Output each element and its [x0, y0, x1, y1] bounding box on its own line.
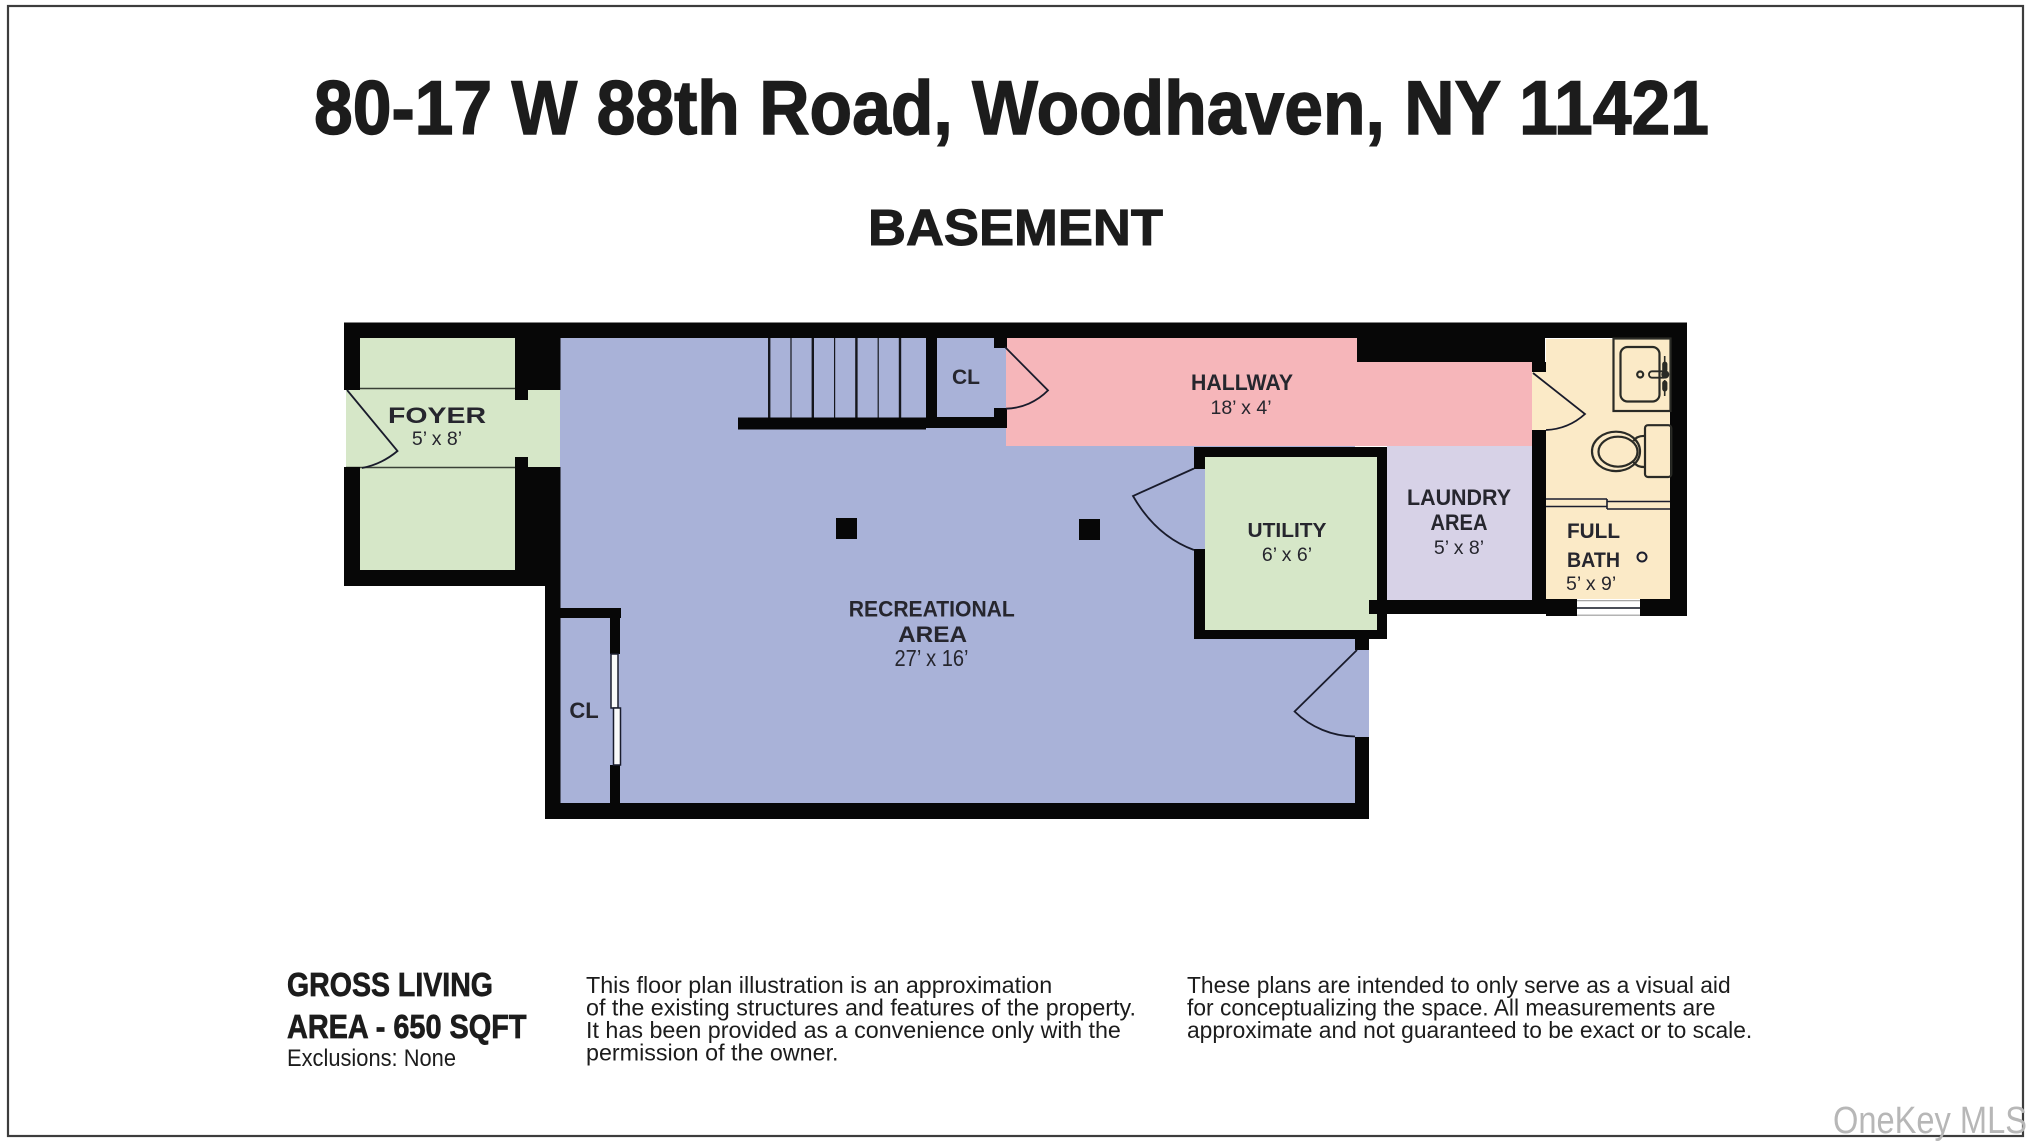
svg-text:CL: CL — [569, 698, 598, 723]
svg-text:CL: CL — [952, 366, 980, 389]
svg-text:FOYER: FOYER — [388, 403, 486, 428]
svg-text:BASEMENT: BASEMENT — [868, 199, 1163, 256]
svg-text:permission of the owner.: permission of the owner. — [586, 1040, 839, 1066]
svg-text:RECREATIONAL: RECREATIONAL — [849, 597, 1015, 622]
svg-text:80-17 W 88th Road, Woodhaven,: 80-17 W 88th Road, Woodhaven, NY 11421 — [314, 66, 1709, 151]
svg-text:approximate and not guaranteed: approximate and not guaranteed to be exa… — [1187, 1017, 1752, 1043]
svg-text:GROSS LIVING: GROSS LIVING — [287, 966, 493, 1003]
svg-text:LAUNDRY: LAUNDRY — [1407, 485, 1511, 510]
svg-text:AREA: AREA — [898, 622, 967, 647]
svg-text:AREA: AREA — [1431, 510, 1488, 535]
svg-text:BATH: BATH — [1567, 548, 1620, 572]
svg-text:FULL: FULL — [1567, 519, 1620, 543]
svg-text:AREA - 650 SQFT: AREA - 650 SQFT — [287, 1008, 527, 1045]
svg-text:HALLWAY: HALLWAY — [1191, 370, 1293, 395]
svg-text:5’ x 9’: 5’ x 9’ — [1566, 573, 1616, 595]
svg-text:5’ x 8’: 5’ x 8’ — [1434, 537, 1484, 559]
svg-text:18’ x 4’: 18’ x 4’ — [1210, 397, 1271, 419]
svg-text:27’ x 16’: 27’ x 16’ — [895, 645, 969, 671]
svg-text:OneKey MLS: OneKey MLS — [1833, 1100, 2027, 1142]
svg-text:Exclusions: None: Exclusions: None — [287, 1045, 456, 1072]
svg-text:UTILITY: UTILITY — [1248, 519, 1327, 542]
svg-text:6’ x 6’: 6’ x 6’ — [1262, 544, 1312, 566]
svg-text:5’ x 8’: 5’ x 8’ — [412, 428, 462, 450]
